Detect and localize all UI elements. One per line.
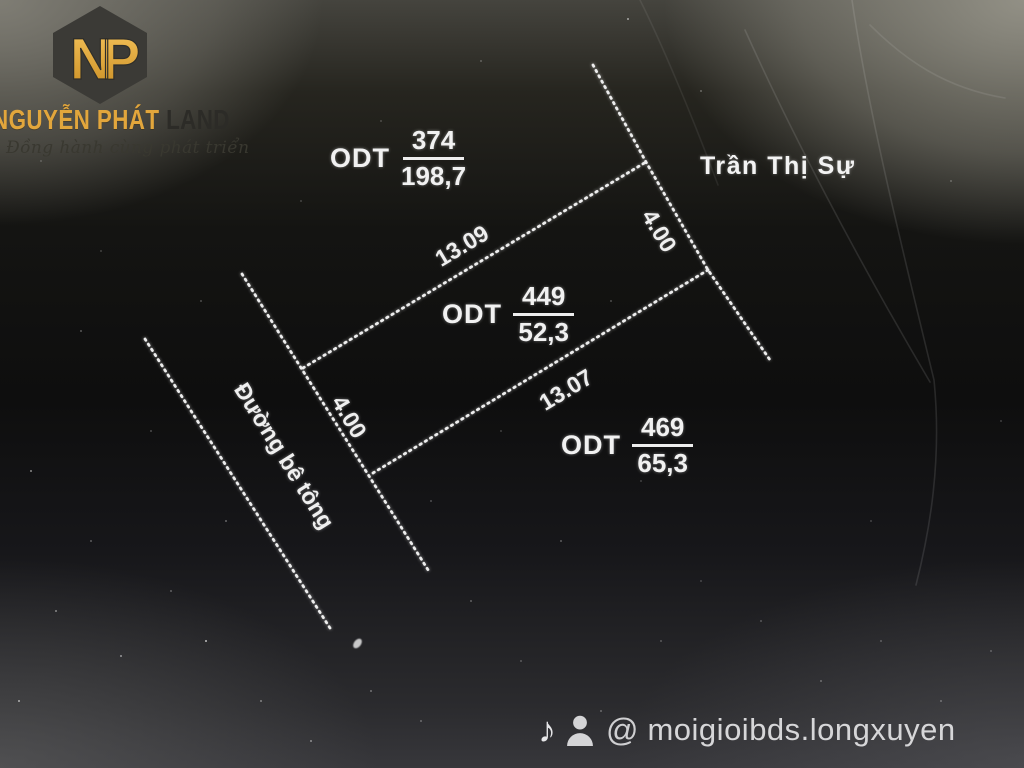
- zone-code: ODT: [442, 299, 502, 330]
- zone-code: ODT: [561, 430, 621, 461]
- lot-number: 374: [403, 127, 464, 160]
- zone-code: ODT: [330, 143, 390, 174]
- lot-area: 52,3: [518, 316, 569, 346]
- social-handle-bar: ♪ @ moigioibds.longxuyen: [538, 712, 956, 748]
- lot-area-fraction: 374 198,7: [401, 127, 466, 190]
- parcel-label-469: ODT 469 65,3: [561, 414, 693, 477]
- lot-number: 469: [632, 414, 693, 447]
- brand-logo: NP NGUYỄN PHÁT LAND Đồng hành cùng phát …: [0, 0, 240, 170]
- social-handle-text: moigioibds.longxuyen: [647, 712, 955, 748]
- parcel-label-374: ODT 374 198,7: [330, 127, 466, 190]
- parcel-label-449: ODT 449 52,3: [442, 283, 574, 346]
- land-plot-photo: NP NGUYỄN PHÁT LAND Đồng hành cùng phát …: [0, 0, 1024, 768]
- logo-monogram: NP: [70, 27, 139, 92]
- brand-tagline: Đồng hành cùng phát triển: [6, 138, 249, 158]
- neighbor-boundary-line: [593, 65, 770, 360]
- lot-area: 65,3: [637, 447, 688, 477]
- lot-area-fraction: 449 52,3: [513, 283, 574, 346]
- at-icon: @: [604, 714, 638, 746]
- brand-name-primary: NGUYỄN PHÁT: [0, 104, 159, 135]
- lot-area: 198,7: [401, 160, 466, 190]
- brand-name-secondary: LAND: [166, 104, 230, 135]
- lot-number: 449: [513, 283, 574, 316]
- tiktok-icon: ♪: [538, 712, 556, 748]
- neighbor-owner-label: Trần Thị Sự: [700, 152, 855, 181]
- lot-area-fraction: 469 65,3: [632, 414, 693, 477]
- person-icon: [565, 714, 595, 746]
- brand-wordmark: NGUYỄN PHÁT LAND: [0, 104, 230, 136]
- logo-hexagon: NP: [0, 0, 220, 112]
